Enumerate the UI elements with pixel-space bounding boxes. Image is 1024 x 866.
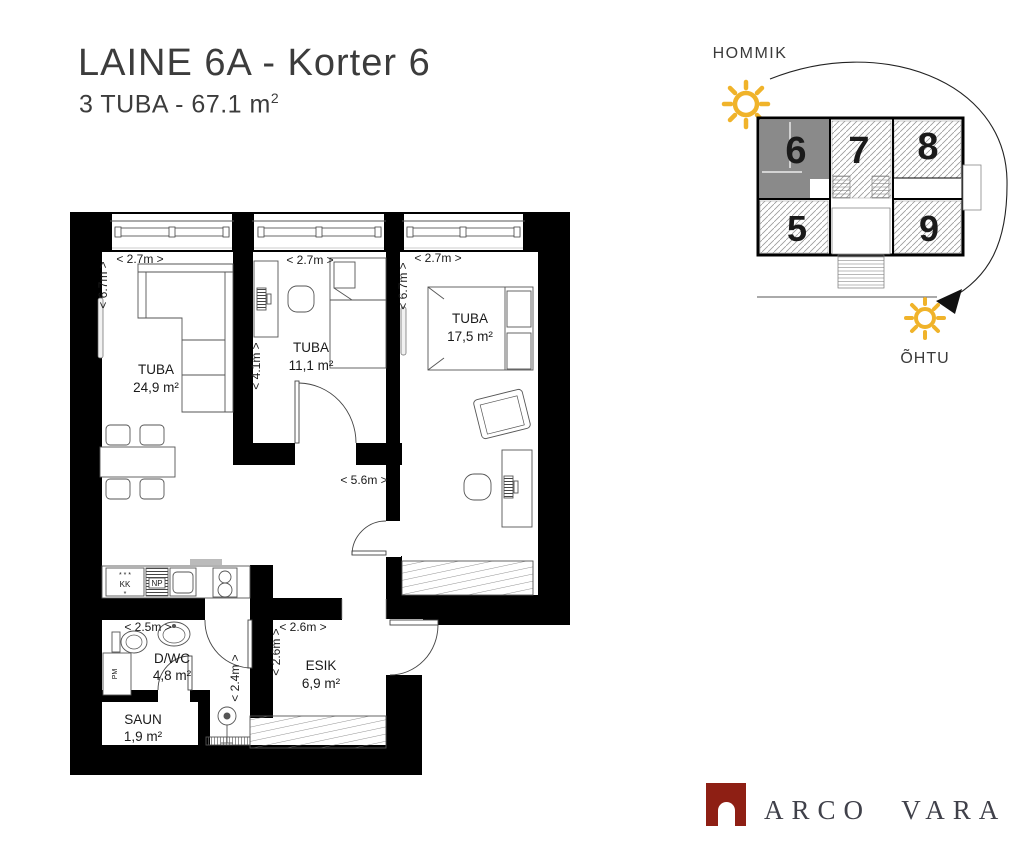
room-sauna-area: 1,9 m² (124, 729, 163, 744)
room-bathroom-area: 4,8 m² (153, 668, 192, 683)
window-living (110, 214, 234, 250)
morning-label: HOMMIK (713, 45, 788, 62)
evening-label: ÕHTU (900, 347, 949, 367)
side-annex (963, 165, 981, 210)
desk-bedroom-small (254, 261, 314, 337)
entrance-shaft (832, 208, 890, 254)
wardrobe-bedroom-large (402, 561, 533, 595)
logo-text: ARCO VARA (764, 795, 1006, 826)
room-bedroom-small-name: TUBA (293, 340, 329, 355)
stairwell-upper-left (833, 176, 850, 198)
exterior-stairs (838, 255, 884, 288)
dim-bathroom-height: < 2.4m > (228, 654, 242, 701)
dim-bedroom-large-height: < 6.7m > (396, 262, 410, 309)
dim-hallway-height: < 2.6m > (269, 628, 283, 675)
room-living-area: 24,9 m² (133, 380, 179, 395)
radiator-bedroom-large (401, 307, 406, 355)
room-bedroom-large-name: TUBA (452, 311, 488, 326)
sun-evening-icon (906, 299, 944, 338)
fridge-stars-label: * * * (119, 572, 131, 579)
washing-machine-label: PM (112, 669, 119, 680)
fridge-label: KK (120, 580, 131, 589)
desk-bedroom-large (464, 450, 532, 527)
room-bathroom-name: D/WC (154, 651, 190, 666)
dim-living-height: < 6.7m > (96, 261, 110, 308)
room-bedroom-small-area: 11,1 m² (289, 358, 334, 373)
arrow-icon (936, 289, 962, 314)
wardrobe-hallway (250, 716, 386, 748)
armchair (473, 389, 531, 440)
minimap-svg: HOMMIK ÕHTU (690, 30, 1024, 375)
dim-bedroom-large-width: < 2.7m > (414, 251, 461, 265)
room-sauna-name: SAUN (124, 712, 162, 727)
company-logo: ARCO VARA (706, 781, 1006, 841)
page: LAINE 6A - Korter 6 3 TUBA - 67.1 m2 (0, 0, 1024, 866)
room-living-name: TUBA (138, 362, 174, 377)
floorplan-svg: * * * KK * NP (70, 205, 570, 780)
window-bedroom-small (252, 214, 386, 250)
shower (206, 707, 250, 745)
dim-bathroom-width: < 2.5m > (124, 620, 171, 634)
stairwell-upper-right (872, 176, 889, 198)
toilet (112, 631, 147, 653)
unit-number-9: 9 (919, 208, 939, 249)
subtitle-text: 3 TUBA - 67.1 m (79, 90, 271, 118)
window-bedroom-large (402, 214, 525, 250)
unit-number-6: 6 (785, 130, 806, 172)
washing-machine: PM (103, 653, 131, 695)
dishwasher-label: NP (151, 579, 162, 588)
unit-number-8: 8 (917, 126, 938, 168)
dim-living-width: < 2.7m > (116, 252, 163, 266)
unit-number-5: 5 (787, 208, 807, 249)
room-hallway-name: ESIK (306, 658, 337, 673)
fridge-star-label: * (124, 591, 127, 598)
door-bedroom-small (295, 381, 356, 443)
unit-number-7: 7 (848, 130, 869, 172)
bed-single (330, 258, 386, 368)
door-bedroom-large (352, 521, 386, 555)
dim-living-area-width: < 5.6m > (340, 473, 387, 487)
room-hallway-area: 6,9 m² (302, 676, 341, 691)
dim-bedroom-small-height: < 4.1m > (249, 342, 263, 389)
windows (110, 214, 525, 250)
room-labels: TUBA 24,9 m² TUBA 11,1 m² TUBA 17,5 m² D… (124, 311, 494, 744)
page-subtitle: 3 TUBA - 67.1 m2 (79, 90, 279, 119)
dining-table (100, 425, 175, 499)
dim-bedroom-small-width: < 2.7m > (286, 253, 333, 267)
room-bedroom-large-area: 17,5 m² (447, 329, 493, 344)
page-title: LAINE 6A - Korter 6 (78, 42, 431, 85)
arch-icon (706, 783, 746, 826)
subtitle-superscript: 2 (271, 90, 279, 106)
dim-hallway-width: < 2.6m > (279, 620, 326, 634)
